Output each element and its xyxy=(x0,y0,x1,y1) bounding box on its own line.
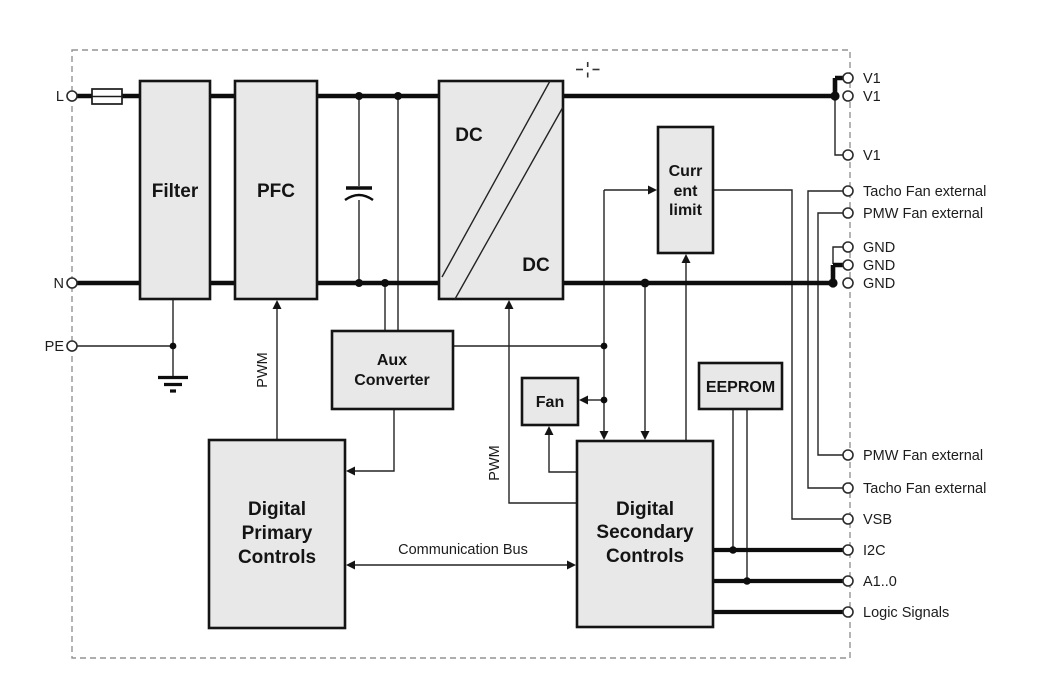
arrow-pwm-primary xyxy=(273,300,282,309)
arrow-pwm-secondary xyxy=(505,300,514,309)
crosshair-cursor xyxy=(576,62,600,78)
output-terminal-gnd-2: GND xyxy=(843,258,895,274)
aux-converter-label-1: Aux xyxy=(377,352,407,369)
pfc-block: PFC xyxy=(235,81,317,299)
filter-block: Filter xyxy=(140,81,210,299)
svg-text:PMW Fan external: PMW Fan external xyxy=(863,448,983,464)
pfc-label: PFC xyxy=(257,181,295,202)
output-terminal-gnd-1: GND xyxy=(843,240,895,256)
digital-primary-controls-block: Digital Primary Controls xyxy=(209,440,345,628)
current-limit-label-1: Curr xyxy=(669,163,703,180)
secondary-label-3: Controls xyxy=(606,546,684,567)
primary-label-1: Digital xyxy=(248,499,306,520)
communication-bus-label: Communication Bus xyxy=(398,542,528,558)
output-terminal-logic-signals: Logic Signals xyxy=(843,605,949,621)
arrow-aux-to-secondary xyxy=(600,431,609,440)
wire-v1-3 xyxy=(835,97,843,155)
output-terminal-gnd-3: GND xyxy=(843,276,895,292)
svg-text:GND: GND xyxy=(863,240,895,256)
primary-label-3: Controls xyxy=(238,547,316,568)
svg-text:Tacho Fan external: Tacho Fan external xyxy=(863,481,986,497)
eeprom-label: EEPROM xyxy=(706,379,775,396)
svg-text:Logic Signals: Logic Signals xyxy=(863,605,949,621)
secondary-label-2: Secondary xyxy=(596,522,694,543)
secondary-label-1: Digital xyxy=(616,499,674,520)
pwm-primary-label: PWM xyxy=(255,352,271,387)
output-terminal-v1-3: V1 xyxy=(843,148,881,164)
output-terminal-a10: A1..0 xyxy=(843,574,897,590)
arrow-n-to-secondary xyxy=(641,431,650,440)
input-terminal-pe: PE xyxy=(45,339,77,355)
output-terminal-v1-1: V1 xyxy=(843,71,881,87)
power-supply-block-diagram: Filter PFC DC DC Curr ent limit Aux Conv… xyxy=(0,0,1040,679)
earth-ground-icon xyxy=(158,378,188,392)
aux-converter-label-2: Converter xyxy=(354,372,430,389)
pe-terminal-label: PE xyxy=(45,339,65,355)
arrow-bus-right xyxy=(567,561,576,570)
l-terminal-label: L xyxy=(56,89,64,105)
fan-label: Fan xyxy=(536,394,564,411)
n-terminal-circle xyxy=(67,278,77,288)
dcdc-converter-block: DC DC xyxy=(439,81,563,299)
svg-text:GND: GND xyxy=(863,258,895,274)
svg-text:V1: V1 xyxy=(863,71,881,87)
arrow-into-current-limit xyxy=(648,186,657,195)
wire-aux-to-primary xyxy=(355,409,394,471)
primary-label-2: Primary xyxy=(242,523,313,544)
wire-pmw-fan-link xyxy=(818,213,843,455)
pwm-secondary-label: PWM xyxy=(487,445,503,480)
svg-text:V1: V1 xyxy=(863,89,881,105)
current-limit-label-3: limit xyxy=(669,202,703,219)
svg-text:GND: GND xyxy=(863,276,895,292)
n-terminal-label: N xyxy=(54,276,64,292)
digital-secondary-controls-block: Digital Secondary Controls xyxy=(577,441,713,627)
aux-converter-block: Aux Converter xyxy=(332,331,453,409)
svg-text:V1: V1 xyxy=(863,148,881,164)
filter-label: Filter xyxy=(152,181,199,202)
capacitor-icon xyxy=(345,188,373,200)
dcdc-output-label: DC xyxy=(522,255,550,276)
svg-text:PMW Fan external: PMW Fan external xyxy=(863,206,983,222)
input-terminal-l: L xyxy=(56,89,77,105)
eeprom-block: EEPROM xyxy=(699,363,782,409)
output-terminal-pmw-bottom: PMW Fan external xyxy=(843,448,983,464)
svg-text:Tacho Fan external: Tacho Fan external xyxy=(863,184,986,200)
current-limit-block: Curr ent limit xyxy=(658,127,713,253)
current-limit-label-2: ent xyxy=(674,183,699,200)
wire-gnd-1 xyxy=(833,247,843,264)
pe-terminal-circle xyxy=(67,341,77,351)
arrow-fan-control xyxy=(545,426,554,435)
svg-text:I2C: I2C xyxy=(863,543,886,559)
input-terminal-n: N xyxy=(54,276,77,292)
dcdc-input-label: DC xyxy=(455,125,483,146)
l-terminal-circle xyxy=(67,91,77,101)
wire-tacho-fan-link xyxy=(808,191,843,488)
wire-fan-control xyxy=(549,435,577,472)
fuse-icon xyxy=(92,89,122,104)
arrow-aux-to-primary xyxy=(346,467,355,476)
svg-text:A1..0: A1..0 xyxy=(863,574,897,590)
fan-block: Fan xyxy=(522,378,578,425)
arrow-bus-left xyxy=(346,561,355,570)
output-terminal-pmw-top: PMW Fan external xyxy=(843,206,983,222)
output-terminal-tacho-top: Tacho Fan external xyxy=(843,184,986,200)
arrow-fan-power xyxy=(579,396,588,405)
svg-text:VSB: VSB xyxy=(863,512,892,528)
output-terminal-v1-2: V1 xyxy=(843,89,881,105)
capacitor-plate-bottom xyxy=(345,195,373,200)
output-terminal-tacho-bottom: Tacho Fan external xyxy=(843,481,986,497)
arrow-current-limit-ctrl xyxy=(682,254,691,263)
